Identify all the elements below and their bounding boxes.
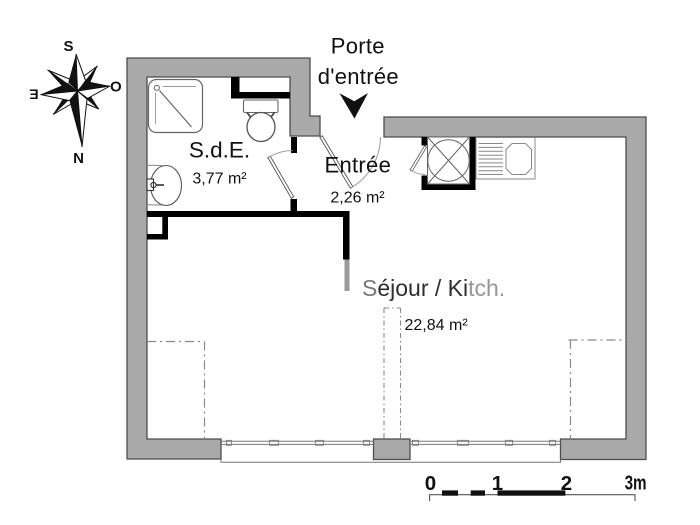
svg-text:E: E <box>29 86 38 102</box>
svg-text:S.d.E.: S.d.E. <box>189 138 250 163</box>
svg-text:Entrée: Entrée <box>324 153 391 178</box>
svg-text:0: 0 <box>425 472 436 495</box>
svg-text:1: 1 <box>492 472 503 495</box>
svg-text:3m: 3m <box>625 471 647 494</box>
svg-text:2,26 m²: 2,26 m² <box>330 190 385 207</box>
svg-text:2: 2 <box>561 472 572 495</box>
svg-text:O: O <box>110 79 122 96</box>
svg-text:22,84 m²: 22,84 m² <box>405 317 469 334</box>
svg-text:S: S <box>63 38 73 55</box>
svg-text:Porte: Porte <box>331 33 385 58</box>
svg-text:N: N <box>73 150 84 167</box>
svg-text:3,77 m²: 3,77 m² <box>192 171 247 188</box>
svg-text:Séjour / Kitch.: Séjour / Kitch. <box>362 275 505 301</box>
svg-text:d'entrée: d'entrée <box>318 64 399 89</box>
